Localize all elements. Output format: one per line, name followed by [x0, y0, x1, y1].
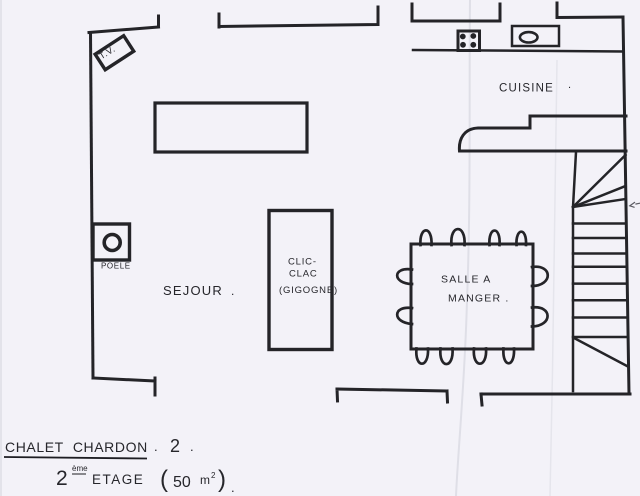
svg-text:SEJOUR: SEJOUR — [163, 283, 223, 298]
svg-text:ETAGE: ETAGE — [92, 472, 144, 487]
svg-text:CLAC: CLAC — [289, 269, 318, 280]
svg-text:m: m — [200, 473, 210, 487]
svg-text:2: 2 — [170, 436, 180, 456]
svg-text:CHALET CHARDON: CHALET CHARDON — [5, 439, 148, 455]
svg-text:ème: ème — [72, 464, 88, 473]
svg-text:(GIGOGNE): (GIGOGNE) — [279, 285, 338, 296]
svg-text:.: . — [231, 284, 234, 298]
svg-text:.: . — [568, 79, 571, 91]
svg-text:50: 50 — [173, 474, 191, 491]
svg-text:.: . — [154, 439, 158, 454]
svg-text:.: . — [231, 480, 235, 495]
svg-text:MANGER .: MANGER . — [448, 293, 510, 305]
svg-text:CUISINE: CUISINE — [499, 83, 554, 95]
svg-text:SALLE A: SALLE A — [441, 274, 491, 286]
svg-text:2: 2 — [56, 467, 68, 490]
svg-text:.: . — [190, 439, 194, 454]
svg-text:CLIC-: CLIC- — [288, 257, 317, 268]
svg-text:): ) — [218, 466, 226, 493]
svg-text:2: 2 — [211, 471, 216, 480]
svg-text:(: ( — [160, 466, 168, 493]
svg-text:POELE: POELE — [101, 262, 131, 271]
